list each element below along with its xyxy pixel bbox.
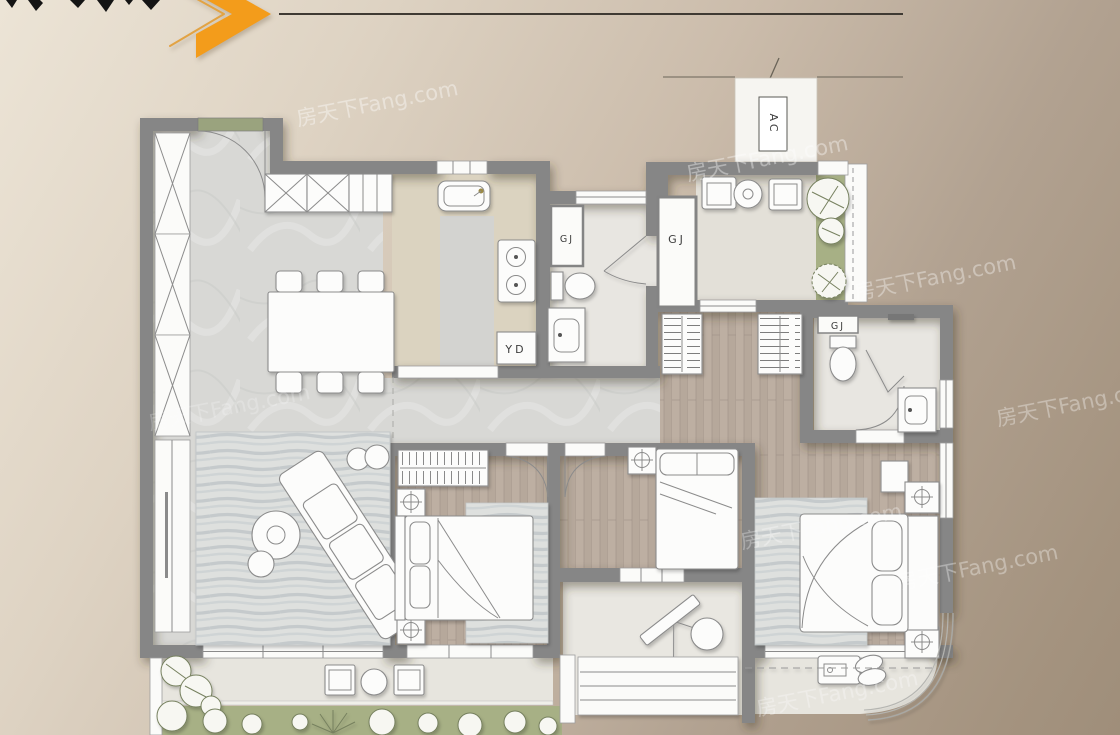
terrace-table [734, 180, 762, 208]
chevron-decoration [170, 0, 271, 58]
dining-table [268, 292, 394, 372]
watermark-text: 房天下Fang.com [294, 76, 460, 131]
stove [498, 240, 535, 302]
kitchen-aisle-floor [440, 216, 494, 366]
dining-set [268, 271, 394, 393]
master-toilet [830, 347, 856, 381]
garden-table [361, 669, 387, 695]
floorplan-canvas: AC [0, 0, 1120, 735]
hallway-floor [383, 378, 660, 443]
master-vanity [898, 388, 936, 432]
floorplan-page: AC [0, 0, 1120, 735]
gj-corridor-label: GJ [668, 233, 686, 246]
yd-label: YD [504, 343, 526, 356]
gj-shaft-corridor [658, 197, 696, 307]
watermark-text: 房天下Fang.com [852, 250, 1018, 305]
stool [691, 618, 723, 650]
entry-threshold [198, 118, 263, 131]
calligraphy-fragments [6, 0, 160, 12]
chevron-solid-icon [196, 0, 271, 58]
watermark-text: 房天下Fang.com [994, 376, 1120, 431]
tree-icon [807, 178, 849, 220]
ac-label: AC [767, 113, 780, 134]
gj-master-bath-label: GJ [831, 321, 845, 332]
entry-storage-cabinets [265, 174, 392, 212]
gj-bath-label: GJ [560, 234, 574, 245]
toilet [565, 273, 595, 299]
left-wall-units [155, 133, 190, 632]
